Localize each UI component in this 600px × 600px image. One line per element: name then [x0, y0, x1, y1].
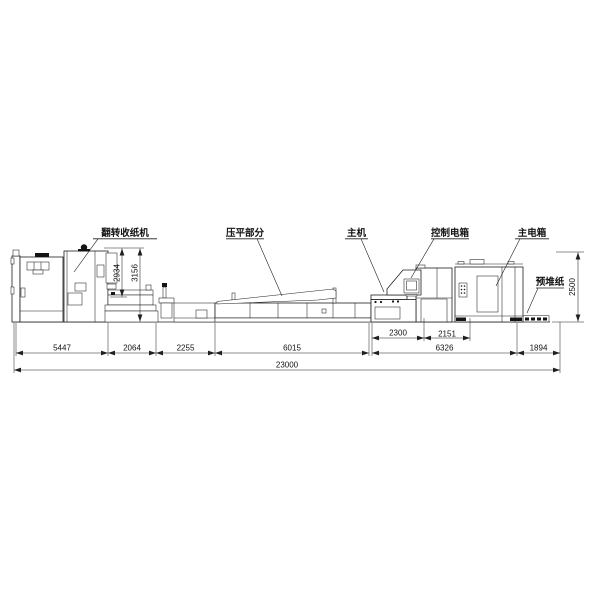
dim-6015: 6015	[283, 344, 301, 353]
label-flattening: 压平部分	[226, 227, 265, 239]
label-main-electric-box: 主电箱	[518, 227, 547, 239]
dim-2151: 2151	[438, 330, 456, 339]
dim-23000-total: 23000	[276, 361, 299, 370]
dim-2064: 2064	[123, 344, 141, 353]
label-control-box: 控制电箱	[431, 227, 470, 239]
dim-2934: 2934	[113, 264, 122, 282]
cabinet-door	[477, 276, 498, 312]
label-flip-stacker: 翻转收纸机	[101, 227, 149, 239]
dim-2300: 2300	[389, 329, 407, 338]
label-prestack-paper: 预堆纸	[536, 276, 565, 288]
dim-6326: 6326	[436, 344, 454, 353]
dim-5447: 5447	[53, 344, 71, 353]
engineering-drawing: 翻转收纸机 压平部分 主机 控制电箱 主电箱 预堆纸 2934 3156 250…	[0, 0, 600, 600]
dim-2255: 2255	[177, 344, 195, 353]
prestack-paper-platform	[523, 316, 549, 323]
label-main-machine: 主机	[347, 227, 367, 239]
dim-2500: 2500	[568, 278, 577, 296]
main-machine	[371, 265, 452, 322]
flip-stacker-machine	[11, 244, 117, 322]
dim-1894: 1894	[530, 344, 548, 353]
horizontal-dimensions: 2300 2151 5447 2064 2255 6015 6326 1894 …	[14, 318, 560, 373]
button-panel	[459, 283, 467, 297]
main-electric-cabinet	[455, 260, 523, 323]
transfer-table	[105, 283, 215, 322]
laminator-line-drawing: 翻转收纸机 压平部分 主机 控制电箱 主电箱 预堆纸 2934 3156 250…	[0, 0, 600, 600]
dim-3156: 3156	[131, 264, 140, 282]
flattening-conveyor	[215, 288, 371, 322]
